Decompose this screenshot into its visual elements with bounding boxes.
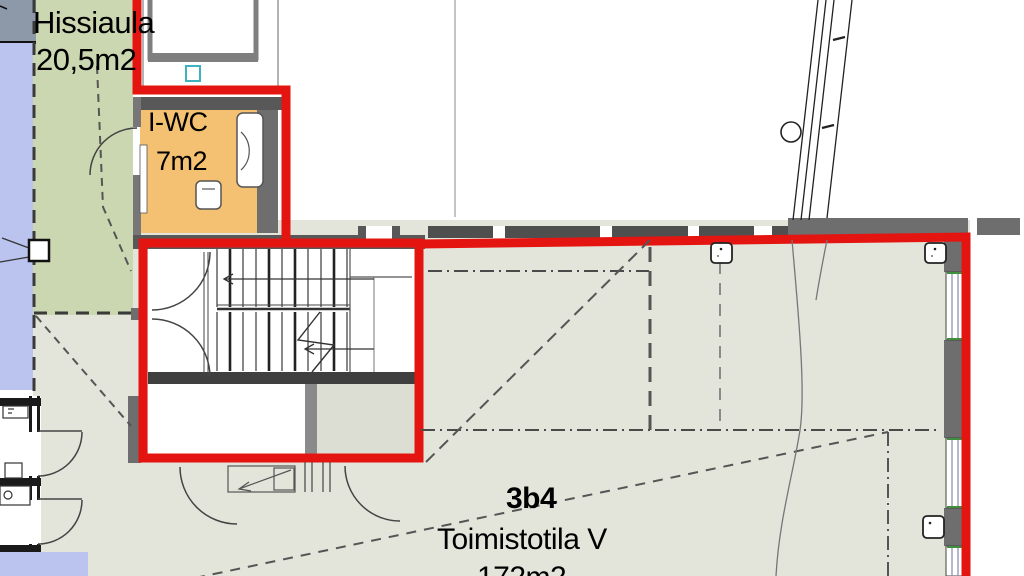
elevator-marker-icon: [186, 66, 200, 81]
stairwell-region: [148, 249, 419, 373]
window-gap: [600, 226, 612, 238]
wall-stair-bottom: [148, 372, 419, 384]
stair-lower-right-room: [317, 384, 419, 455]
stair-lower-left-room: [148, 384, 306, 455]
mullion-tick: [822, 125, 834, 128]
floor-plan: Hissiaula 20,5m2 I-WC 7m2 3b4 Toimistoti…: [0, 0, 1024, 576]
slanted-curtain-wall: [781, 0, 852, 220]
device-box-icon: [923, 516, 944, 538]
cabinet-icon: [5, 463, 22, 478]
window: [946, 438, 964, 508]
column-circle-icon: [781, 122, 801, 142]
mullion-tick: [833, 37, 845, 40]
room-label-hissiaula: Hissiaula: [33, 7, 154, 38]
window: [946, 272, 964, 340]
room-area-iwc: 7m2: [156, 148, 207, 175]
elevator-door-sill: [148, 53, 258, 62]
door-leaf: [140, 145, 147, 213]
corridor-region-bottom: [0, 552, 88, 576]
toilet-icon: [237, 113, 263, 187]
column-icon: [29, 240, 49, 261]
window: [946, 546, 964, 576]
door-gap: [366, 226, 392, 239]
room-area-office: 172m2: [477, 563, 566, 576]
outside-right-region: [970, 238, 1024, 576]
device-box-icon: [711, 243, 732, 263]
wall-wc-left-upper: [133, 97, 141, 127]
floor-drain-icon: [196, 181, 221, 209]
wall-office-top-outside: [977, 218, 1020, 235]
room-label-iwc: I-WC: [148, 109, 207, 136]
elevator-car-icon: [150, 0, 256, 58]
window-gap: [493, 226, 505, 238]
room-label-office: Toimistotila V: [437, 525, 607, 555]
cabinet-icon: [3, 406, 28, 418]
shaft-block: [0, 0, 36, 43]
device-box-icon: [925, 243, 946, 263]
room-area-hissiaula: 20,5m2: [36, 44, 136, 75]
room-code-office: 3b4: [506, 484, 556, 514]
corridor-region: [0, 43, 33, 390]
wall-room-divider: [305, 384, 317, 455]
